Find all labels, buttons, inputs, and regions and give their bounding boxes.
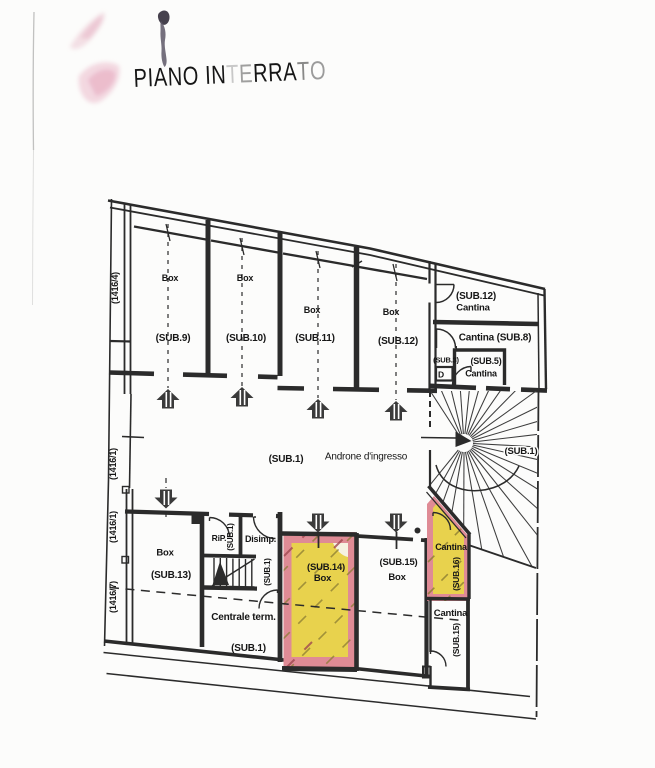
svg-text:Androne d'ingresso: Androne d'ingresso [325,452,408,463]
svg-text:Box: Box [237,273,254,283]
svg-text:(SUB.1): (SUB.1) [269,454,304,465]
svg-text:Disimp.: Disimp. [245,534,276,544]
svg-text:Cantina: Cantina [435,542,468,552]
svg-text:(SUB.13): (SUB.13) [151,570,191,581]
svg-text:Cantina (SUB.8): Cantina (SUB.8) [459,333,532,344]
svg-text:(1416/1): (1416/1) [108,511,118,543]
svg-text:(SUB.3): (SUB.3) [433,356,459,365]
svg-text:RiP.: RiP. [212,533,227,543]
svg-text:Box: Box [314,573,332,584]
svg-text:(SUB.1): (SUB.1) [505,446,538,457]
svg-text:D: D [438,370,444,380]
svg-text:(SUB.16): (SUB.16) [451,557,461,591]
svg-text:(1416/4): (1416/4) [110,272,120,304]
svg-text:(SUB.1): (SUB.1) [231,643,266,654]
svg-text:(SUB.15): (SUB.15) [380,557,418,568]
svg-text:Cantina: Cantina [465,369,498,379]
svg-text:Cantina: Cantina [434,608,468,619]
svg-text:Cantina: Cantina [456,303,490,314]
svg-text:(SUB.15): (SUB.15) [451,623,461,657]
svg-text:(1416/7): (1416/7) [108,581,118,613]
svg-text:Centrale term.: Centrale term. [211,612,276,623]
svg-text:(SUB.12): (SUB.12) [456,291,496,302]
svg-text:Box: Box [383,307,400,317]
svg-text:(SUB.5): (SUB.5) [470,356,501,366]
svg-text:(SUB.14): (SUB.14) [307,562,345,573]
svg-text:(SUB.1): (SUB.1) [226,523,235,551]
svg-text:PIANO INTERRATO: PIANO INTERRATO [133,55,327,92]
svg-text:(SUB.11): (SUB.11) [295,333,335,344]
svg-text:(SUB.10): (SUB.10) [226,333,266,344]
svg-text:(SUB.9): (SUB.9) [156,333,191,344]
svg-text:Box: Box [162,273,179,283]
svg-text:(1416/1): (1416/1) [108,448,118,480]
svg-text:Box: Box [388,572,406,583]
svg-text:(SUB.1): (SUB.1) [263,558,272,586]
svg-text:(SUB.12): (SUB.12) [378,336,418,347]
svg-text:Box: Box [304,305,321,315]
svg-text:Box: Box [156,548,174,559]
